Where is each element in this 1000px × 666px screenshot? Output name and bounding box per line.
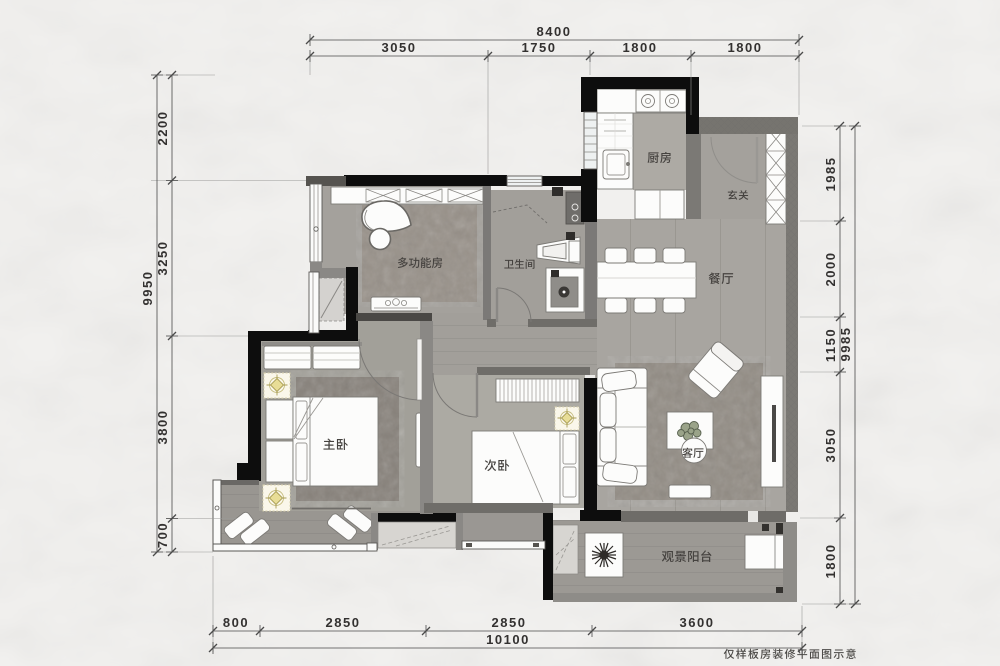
svg-text:3050: 3050 (823, 428, 838, 463)
svg-text:3250: 3250 (155, 241, 170, 276)
svg-text:700: 700 (155, 522, 170, 548)
svg-text:2200: 2200 (155, 111, 170, 146)
svg-text:1150: 1150 (823, 328, 838, 362)
svg-text:2000: 2000 (823, 252, 838, 287)
svg-text:9985: 9985 (838, 327, 853, 362)
svg-text:1800: 1800 (728, 40, 763, 55)
svg-text:3600: 3600 (680, 615, 715, 630)
svg-text:9950: 9950 (140, 271, 155, 306)
svg-text:2850: 2850 (326, 615, 361, 630)
svg-text:1800: 1800 (623, 40, 658, 55)
svg-text:800: 800 (223, 615, 249, 630)
svg-text:8400: 8400 (537, 24, 572, 39)
svg-text:10100: 10100 (486, 632, 530, 647)
svg-text:3800: 3800 (155, 410, 170, 445)
svg-text:1985: 1985 (823, 157, 838, 192)
svg-text:2850: 2850 (492, 615, 527, 630)
svg-text:1800: 1800 (823, 544, 838, 579)
svg-text:3050: 3050 (382, 40, 417, 55)
svg-text:1750: 1750 (522, 40, 557, 55)
